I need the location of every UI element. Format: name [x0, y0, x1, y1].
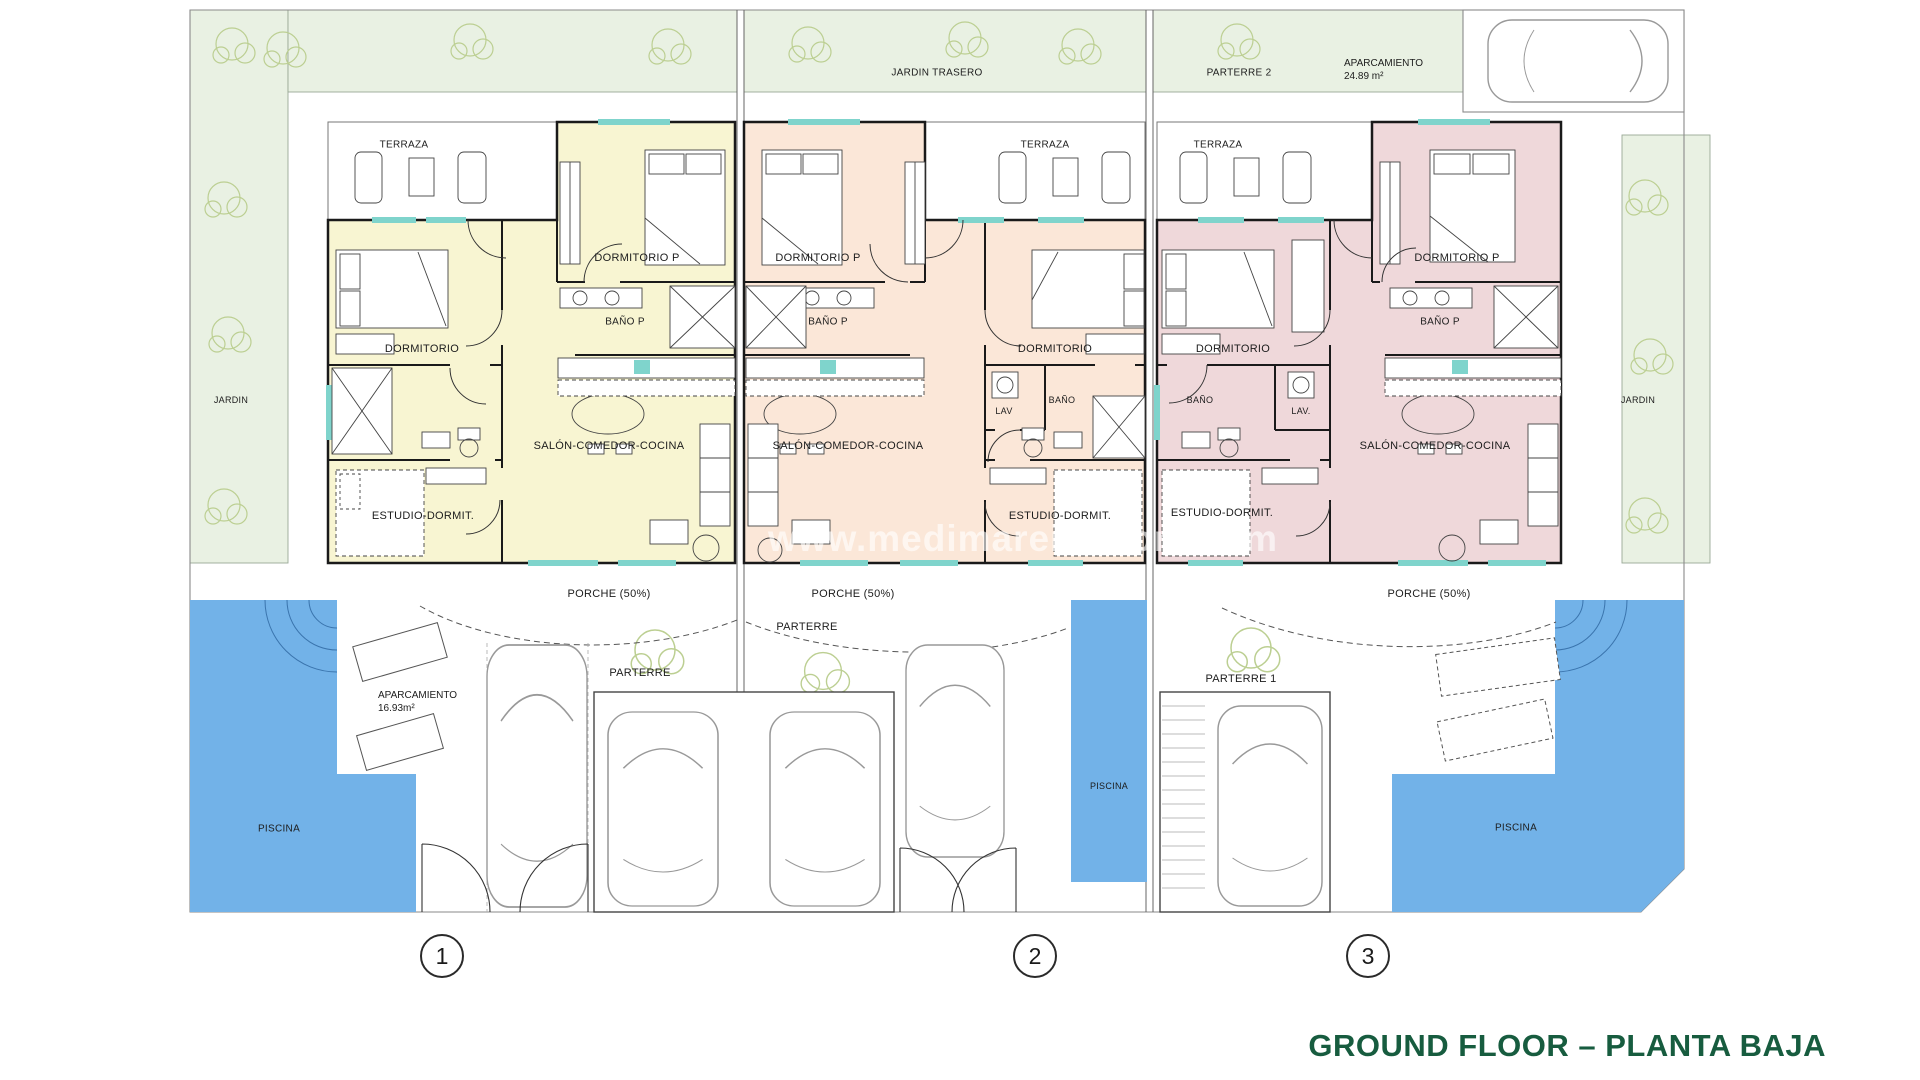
unit-number-1: 1: [420, 934, 464, 978]
label-u2-parterre: PARTERRE: [776, 621, 837, 633]
label-u3-dormitorio-p: DORMITORIO P: [1414, 252, 1499, 264]
label-u2-salon: SALÓN-COMEDOR-COCINA: [773, 440, 924, 452]
label-aparcamiento-top: APARCAMIENTO 24.89 m²: [1344, 58, 1423, 83]
page-title: GROUND FLOOR – PLANTA BAJA: [1308, 1028, 1826, 1064]
label-u1-aparcamiento: APARCAMIENTO 16.93m²: [378, 690, 457, 715]
label-u3-salon: SALÓN-COMEDOR-COCINA: [1360, 440, 1511, 452]
label-u1-bano-p: BAÑO P: [605, 317, 645, 328]
label-jardin-right: JARDIN: [1621, 395, 1655, 405]
label-u1-estudio: ESTUDIO-DORMIT.: [372, 510, 474, 522]
label-u1-dormitorio: DORMITORIO: [385, 343, 459, 355]
floor-plan-canvas: JARDIN JARDIN TRASERO PARTERRE 2 APARCAM…: [0, 0, 1920, 1080]
label-u2-terraza: TERRAZA: [1021, 140, 1070, 151]
label-u2-porche: PORCHE (50%): [811, 588, 894, 600]
label-u3-terraza: TERRAZA: [1194, 140, 1243, 151]
unit-number-2: 2: [1013, 934, 1057, 978]
top-parking-car: [1488, 20, 1668, 102]
label-u2-bano: BAÑO: [1049, 395, 1076, 405]
label-u3-bano-p: BAÑO P: [1420, 317, 1460, 328]
label-u1-dormitorio-p: DORMITORIO P: [594, 252, 679, 264]
label-u3-dormitorio: DORMITORIO: [1196, 343, 1270, 355]
pool-1-upper: [190, 600, 337, 774]
label-u1-porche: PORCHE (50%): [567, 588, 650, 600]
label-u1-salon: SALÓN-COMEDOR-COCINA: [534, 440, 685, 452]
label-u1-parterre: PARTERRE: [609, 667, 670, 679]
label-u2-dormitorio: DORMITORIO: [1018, 343, 1092, 355]
floor-plan-drawing: [0, 0, 1920, 1080]
label-u3-estudio: ESTUDIO-DORMIT.: [1171, 507, 1273, 519]
label-u2-piscina: PISCINA: [1090, 781, 1128, 791]
label-u3-porche: PORCHE (50%): [1387, 588, 1470, 600]
pool-2: [1071, 600, 1147, 882]
label-u3-parterre-1: PARTERRE 1: [1205, 673, 1276, 685]
label-jardin-left: JARDIN: [214, 395, 248, 405]
label-jardin-trasero: JARDIN TRASERO: [891, 68, 982, 79]
label-u3-lav: LAV.: [1291, 406, 1310, 416]
label-u2-lav: LAV: [995, 406, 1012, 416]
label-u2-bano-p: BAÑO P: [808, 317, 848, 328]
label-u2-estudio: ESTUDIO-DORMIT.: [1009, 510, 1111, 522]
vehicles: [487, 643, 1330, 912]
label-u2-dormitorio-p: DORMITORIO P: [775, 252, 860, 264]
label-u1-piscina: PISCINA: [258, 824, 300, 835]
label-u1-terraza: TERRAZA: [380, 140, 429, 151]
label-parterre-2: PARTERRE 2: [1207, 68, 1272, 79]
label-u3-bano: BAÑO: [1187, 395, 1214, 405]
unit-number-3: 3: [1346, 934, 1390, 978]
pool-1-lower: [190, 774, 416, 912]
label-u3-piscina: PISCINA: [1495, 823, 1537, 834]
